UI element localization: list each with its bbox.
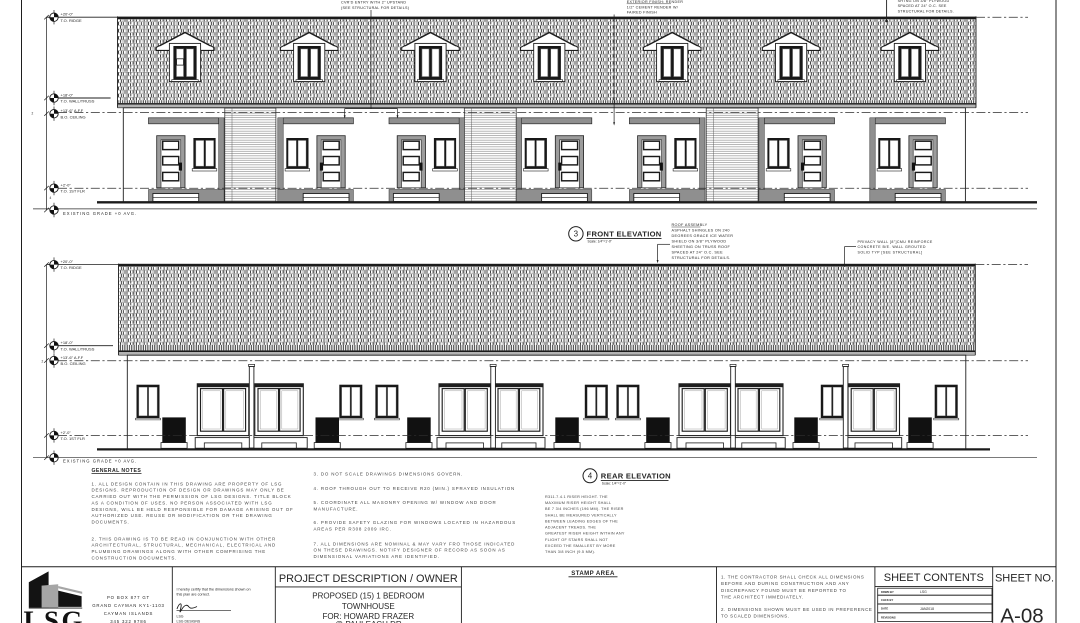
svg-text:FLIGHT OF STAIRS SHALL NOT: FLIGHT OF STAIRS SHALL NOT: [545, 538, 608, 542]
svg-text:ADJACENT TREADS. THE: ADJACENT TREADS. THE: [545, 526, 596, 530]
svg-text:+18'-0": +18'-0": [61, 340, 74, 345]
svg-text:1/2" CEMENT RENDER W/: 1/2" CEMENT RENDER W/: [627, 5, 679, 9]
svg-text:SPACED AT 24" O.C. SEE: SPACED AT 24" O.C. SEE: [898, 4, 947, 8]
svg-text:ARCHITECTURAL, STRUCTURAL, MEC: ARCHITECTURAL, STRUCTURAL, MECHANICAL, E…: [92, 543, 277, 548]
svg-text:GENERAL NOTES: GENERAL NOTES: [92, 468, 142, 474]
svg-text:JAN2018: JAN2018: [920, 607, 934, 611]
svg-text:1. THE CONTRACTOR SHALL CHECK: 1. THE CONTRACTOR SHALL CHECK ALL DIMENS…: [721, 575, 864, 580]
svg-text:SHTNG ON 3/8" PLYWOOD: SHTNG ON 3/8" PLYWOOD: [898, 0, 950, 3]
svg-text:5. COORDINATE ALL MASONRY OPEN: 5. COORDINATE ALL MASONRY OPENING W/ WIN…: [314, 500, 497, 505]
svg-text:PLUMBING DRAWINGS ALONG WITH O: PLUMBING DRAWINGS ALONG WITH OTHER COMPR…: [92, 549, 267, 554]
svg-text:T.O. 1ST FLR: T.O. 1ST FLR: [61, 189, 85, 194]
svg-text:EXISTING GRADE +0 AVG.: EXISTING GRADE +0 AVG.: [63, 459, 137, 464]
svg-text:+13'-6" A.F.F: +13'-6" A.F.F: [61, 355, 84, 360]
svg-text:+2'-0": +2'-0": [61, 183, 72, 188]
svg-text:FRONT ELEVATION: FRONT ELEVATION: [587, 229, 662, 238]
svg-text:T.O. 1ST FLR: T.O. 1ST FLR: [61, 436, 85, 441]
svg-text:SHEET NO.: SHEET NO.: [995, 572, 1054, 584]
svg-text:T.O. WALL/TRUSS: T.O. WALL/TRUSS: [61, 346, 95, 351]
svg-text:TOWNHOUSE: TOWNHOUSE: [342, 602, 395, 611]
svg-text:DESIGNS, WILL BE HELD RESPONSI: DESIGNS, WILL BE HELD RESPONSIBLE FOR DA…: [92, 507, 294, 512]
svg-text:BEFORE AND DURING CONSTRUCTION: BEFORE AND DURING CONSTRUCTION AND ANY: [721, 581, 849, 586]
svg-text:+2'-0": +2'-0": [61, 430, 72, 435]
svg-text:THAN 3/8 INCH (9.5 MM).: THAN 3/8 INCH (9.5 MM).: [545, 550, 595, 554]
svg-text:CAYMAN ISLANDS: CAYMAN ISLANDS: [104, 611, 154, 616]
svg-text:DIMENSIONAL VARIATIONS ARE IDE: DIMENSIONAL VARIATIONS ARE IDENTIFIED.: [314, 554, 440, 559]
svg-text:2: 2: [32, 112, 34, 116]
svg-text:SHIELD ON 3/8" PLYWOOD: SHIELD ON 3/8" PLYWOOD: [672, 240, 727, 244]
svg-text:STAMP AREA: STAMP AREA: [571, 570, 615, 577]
svg-text:ASPHALT SHINGLES ON 240: ASPHALT SHINGLES ON 240: [672, 229, 730, 233]
svg-text:A-08: A-08: [1000, 604, 1043, 623]
svg-text:(SEE STRUCTURAL FOR DETAILS): (SEE STRUCTURAL FOR DETAILS): [341, 6, 409, 10]
svg-text:this plan are correct.: this plan are correct.: [177, 592, 210, 596]
svg-text:AS A CONDITION OF USES. NO PER: AS A CONDITION OF USES. NO PERSON ASSOCI…: [92, 500, 273, 505]
svg-text:DOCUMENTS.: DOCUMENTS.: [92, 520, 130, 525]
svg-text:AREAS PER R308 2009 IRC.: AREAS PER R308 2009 IRC.: [314, 526, 392, 531]
svg-text:R311.7.4.1 RISER HEIGHT. THE: R311.7.4.1 RISER HEIGHT. THE: [545, 495, 608, 499]
svg-text:LSG: LSG: [920, 590, 927, 594]
svg-text:DESIGNS. REPRODUCTION OF DESIG: DESIGNS. REPRODUCTION OF DESIGN OR DRAWI…: [92, 488, 285, 493]
svg-text:LSG: LSG: [24, 606, 86, 623]
svg-text:REVISIONS: REVISIONS: [881, 615, 896, 619]
svg-text:T.O. RIDGE: T.O. RIDGE: [61, 265, 82, 270]
svg-text:ON THESE DRAWINGS. NOTIFY DESI: ON THESE DRAWINGS. NOTIFY DESIGNER OF RE…: [314, 548, 506, 553]
svg-text:I hereby certify that the dime: I hereby certify that the dimensions sho…: [177, 587, 251, 591]
svg-text:B.O. CEILING: B.O. CEILING: [61, 361, 86, 366]
svg-text:+18'-0": +18'-0": [61, 92, 74, 97]
svg-text:MAXIMUM RISER HEIGHT SHALL: MAXIMUM RISER HEIGHT SHALL: [545, 501, 611, 505]
svg-text:2: 2: [42, 359, 44, 363]
svg-text:T.O. RIDGE: T.O. RIDGE: [61, 18, 82, 23]
svg-text:T.O. WALL/TRUSS: T.O. WALL/TRUSS: [61, 99, 95, 104]
svg-text:ROOF ASSEMBLY: ROOF ASSEMBLY: [672, 223, 708, 227]
svg-text:Scale: 1/4"=1'-0": Scale: 1/4"=1'-0": [602, 481, 627, 485]
svg-text:2. THIS DRAWING IS TO BE READ: 2. THIS DRAWING IS TO BE READ IN CONJUNC…: [92, 536, 276, 541]
svg-text:DISCREPANCY FOUND MUST BE REPO: DISCREPANCY FOUND MUST BE REPORTED TO: [721, 588, 847, 593]
svg-text:CARRIED OUT WITH THE PERMISSIO: CARRIED OUT WITH THE PERMISSION OF LSG D…: [92, 494, 292, 499]
svg-text:EXISTING GRADE +0 AVG.: EXISTING GRADE +0 AVG.: [63, 211, 137, 216]
svg-text:4: 4: [588, 472, 593, 481]
svg-text:4. ROOF THROUGH OUT TO RECEIVE: 4. ROOF THROUGH OUT TO RECEIVE R20 (MIN.…: [314, 486, 516, 491]
svg-text:B.O. CEILING: B.O. CEILING: [61, 114, 86, 119]
svg-text:STRUCTURAL FOR DETAILS.: STRUCTURAL FOR DETAILS.: [672, 256, 731, 260]
svg-text:THE ARCHITECT IMMEDIATELY.: THE ARCHITECT IMMEDIATELY.: [721, 595, 804, 600]
svg-text:DEGREES GRACE ICE WATER: DEGREES GRACE ICE WATER: [672, 234, 734, 238]
svg-text:AUTHORIZED USE. REUSE OR MODIF: AUTHORIZED USE. REUSE OR MODIFICATION OR…: [92, 513, 273, 518]
svg-text:+20'-0": +20'-0": [61, 259, 74, 264]
svg-text:PROJECT DESCRIPTION / OWNER: PROJECT DESCRIPTION / OWNER: [279, 573, 458, 585]
svg-text:3. DO NOT SCALE DRAWINGS DIMEN: 3. DO NOT SCALE DRAWINGS DIMENSIONS GOVE…: [314, 472, 464, 477]
svg-text:TO SCALED DIMENSIONS.: TO SCALED DIMENSIONS.: [721, 614, 790, 619]
svg-text:SHEET CONTENTS: SHEET CONTENTS: [884, 572, 984, 584]
svg-text:GREATEST RISER HEIGHT WITHIN A: GREATEST RISER HEIGHT WITHIN ANY: [545, 532, 625, 536]
svg-text:LSG: LSG: [177, 615, 184, 619]
svg-text:REAR ELEVATION: REAR ELEVATION: [601, 471, 671, 480]
svg-text:SHEETING ON TRUSS ROOF: SHEETING ON TRUSS ROOF: [672, 245, 731, 249]
svg-text:+13'-6" A.F.F: +13'-6" A.F.F: [61, 108, 84, 113]
svg-text:STRUCTURAL FOR DETAILS.: STRUCTURAL FOR DETAILS.: [898, 9, 954, 13]
svg-text:PRIVACY WALL [8"]CMU REINFORCE: PRIVACY WALL [8"]CMU REINFORCE: [858, 240, 933, 244]
svg-text:GRAND CAYMAN KY1-1103: GRAND CAYMAN KY1-1103: [92, 603, 165, 608]
svg-text:SHALL BE MEASURED VERTICALLY: SHALL BE MEASURED VERTICALLY: [545, 513, 617, 517]
svg-text:FAIRED FINISH: FAIRED FINISH: [627, 11, 657, 15]
svg-text:PROPOSED (15) 1 BEDROOM: PROPOSED (15) 1 BEDROOM: [312, 592, 424, 601]
svg-text:CONSTRUCTION DOCUMENTS.: CONSTRUCTION DOCUMENTS.: [92, 555, 178, 560]
svg-text:DATE: DATE: [881, 607, 888, 611]
svg-text:EXTERIOR FINISH: RENDER: EXTERIOR FINISH: RENDER: [627, 0, 684, 4]
svg-text:4: 4: [50, 196, 52, 200]
svg-text:3: 3: [574, 230, 579, 239]
svg-text:CHCK BY: CHCK BY: [881, 598, 893, 602]
svg-text:DRWN BY: DRWN BY: [881, 590, 894, 594]
svg-text:BETWEEN LEADING EDGES OF THE: BETWEEN LEADING EDGES OF THE: [545, 519, 618, 523]
svg-text:BE 7 3/4 INCHES (196 MM). THE: BE 7 3/4 INCHES (196 MM). THE RISER: [545, 507, 624, 511]
svg-text:1. ALL DESIGN CONTAIN IN THIS: 1. ALL DESIGN CONTAIN IN THIS DRAWING AR…: [92, 481, 283, 486]
svg-text:EXCEED THE SMALLEST BY MORE: EXCEED THE SMALLEST BY MORE: [545, 544, 616, 548]
svg-text:PO BOX 877 GT: PO BOX 877 GT: [107, 595, 150, 600]
svg-text:CVR'D ENTRY WITH 2" UPSTAND: CVR'D ENTRY WITH 2" UPSTAND: [341, 0, 406, 4]
svg-text:SPACED AT 24" O.C. SEE: SPACED AT 24" O.C. SEE: [672, 251, 724, 255]
svg-text:2. DIMENSIONS SHOWN MUST BE U: 2. DIMENSIONS SHOWN MUST BE USED IN PREF…: [721, 607, 872, 612]
svg-text:7. ALL DIMENSIONS ARE NOMINAL: 7. ALL DIMENSIONS ARE NOMINAL & MAY VARY…: [314, 541, 516, 546]
svg-text:Scale: 1/4"=1'-0": Scale: 1/4"=1'-0": [588, 239, 613, 243]
svg-text:6. PROVIDE SAFETY GLAZING FOR: 6. PROVIDE SAFETY GLAZING FOR WINDOWS LO…: [314, 520, 516, 525]
svg-text:SOLID TYP [SEE STRUCTURAL]: SOLID TYP [SEE STRUCTURAL]: [858, 250, 923, 254]
svg-text:CONCRETE B/E. WALL GROUTED: CONCRETE B/E. WALL GROUTED: [858, 245, 926, 249]
svg-text:MANUFACTURE.: MANUFACTURE.: [314, 506, 359, 511]
svg-text:345 322 9786: 345 322 9786: [110, 619, 147, 623]
svg-text:+20'-0": +20'-0": [61, 12, 74, 17]
svg-text:LSG DESIGNS: LSG DESIGNS: [177, 620, 201, 623]
